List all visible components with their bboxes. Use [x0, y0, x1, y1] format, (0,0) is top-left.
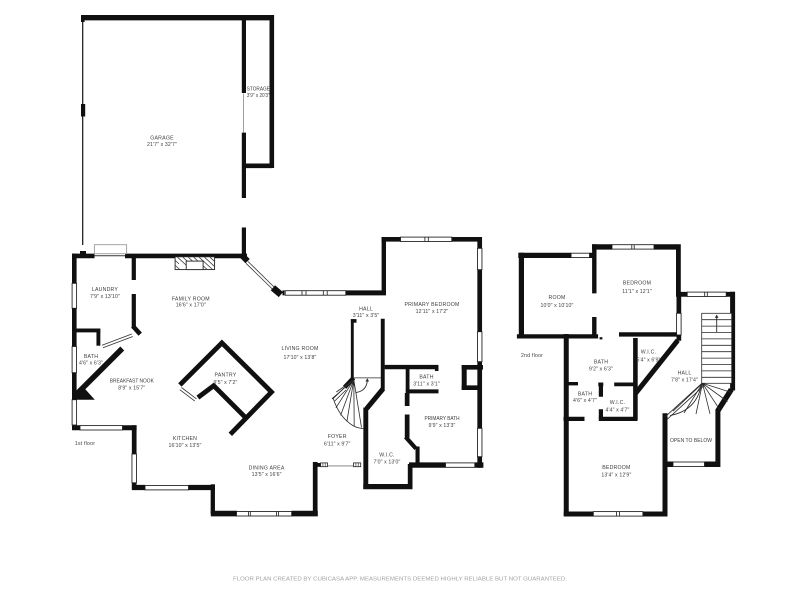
svg-text:9'9" x 13'3": 9'9" x 13'3"	[428, 423, 455, 429]
svg-text:KITCHEN: KITCHEN	[173, 436, 197, 442]
svg-text:1st floor: 1st floor	[75, 441, 96, 447]
svg-text:7'9" x 13'10": 7'9" x 13'10"	[90, 294, 120, 300]
svg-text:4'6" x 4'7": 4'6" x 4'7"	[573, 398, 597, 404]
svg-text:10'0" x 10'10": 10'0" x 10'10"	[540, 303, 573, 309]
svg-text:16'6" x 17'0": 16'6" x 17'0"	[176, 303, 206, 309]
svg-text:LAUNDRY: LAUNDRY	[92, 287, 119, 293]
svg-text:DINING AREA: DINING AREA	[249, 465, 285, 471]
svg-text:FLOOR PLAN CREATED BY CUBICASA: FLOOR PLAN CREATED BY CUBICASA APP. MEAS…	[233, 576, 568, 582]
svg-text:BATH: BATH	[84, 354, 98, 360]
svg-text:BATH: BATH	[578, 391, 592, 397]
svg-text:3'11" x 3'5": 3'11" x 3'5"	[353, 313, 380, 319]
svg-text:17'10" x 13'8": 17'10" x 13'8"	[283, 355, 316, 361]
svg-text:LIVING ROOM: LIVING ROOM	[281, 346, 318, 352]
svg-text:W.I.C.: W.I.C.	[641, 350, 656, 356]
svg-text:ROOM: ROOM	[548, 295, 565, 301]
svg-text:PANTRY: PANTRY	[215, 373, 237, 379]
svg-text:OPEN TO BELOW: OPEN TO BELOW	[670, 438, 712, 444]
svg-text:9'2" x 6'3": 9'2" x 6'3"	[589, 366, 613, 372]
svg-text:6'11" x 9'7": 6'11" x 9'7"	[324, 442, 351, 448]
svg-text:W.I.C.: W.I.C.	[379, 453, 394, 459]
svg-text:BEDROOM: BEDROOM	[602, 465, 630, 471]
svg-text:13'4" x 12'9": 13'4" x 12'9"	[601, 472, 631, 478]
svg-text:BREAKFAST NOOK: BREAKFAST NOOK	[110, 378, 154, 384]
svg-text:BATH: BATH	[419, 374, 433, 380]
svg-text:12'11" x 17'2": 12'11" x 17'2"	[416, 309, 449, 315]
svg-text:7'8" x 17'4": 7'8" x 17'4"	[671, 378, 698, 384]
svg-text:8'9" x 15'7": 8'9" x 15'7"	[118, 385, 145, 391]
svg-text:21'7" x 32'7": 21'7" x 32'7"	[147, 142, 177, 148]
svg-text:PRIMARY BEDROOM: PRIMARY BEDROOM	[405, 302, 460, 308]
svg-text:3'11" x 3'1": 3'11" x 3'1"	[413, 381, 440, 387]
svg-text:11'1" x 12'1": 11'1" x 12'1"	[622, 289, 652, 295]
svg-text:W.I.C.: W.I.C.	[610, 400, 625, 406]
svg-text:BEDROOM: BEDROOM	[623, 281, 651, 287]
svg-text:13'5" x 16'6": 13'5" x 16'6"	[252, 472, 282, 478]
svg-text:HALL: HALL	[359, 307, 373, 313]
svg-text:GARAGE: GARAGE	[150, 135, 174, 141]
svg-text:16'10" x 13'5": 16'10" x 13'5"	[168, 443, 201, 449]
svg-text:4'4" x 4'7": 4'4" x 4'7"	[605, 407, 629, 413]
svg-text:FOYER: FOYER	[328, 434, 347, 440]
svg-text:2nd floor: 2nd floor	[521, 353, 543, 359]
svg-text:4'6" x 6'3": 4'6" x 6'3"	[79, 360, 103, 366]
svg-text:3'9" x 20'3": 3'9" x 20'3"	[247, 93, 270, 99]
svg-text:BATH: BATH	[594, 359, 608, 365]
svg-text:7'0" x 13'0": 7'0" x 13'0"	[373, 460, 400, 466]
svg-text:FAMILY ROOM: FAMILY ROOM	[172, 297, 210, 303]
svg-text:PRIMARY BATH: PRIMARY BATH	[425, 416, 460, 422]
svg-text:STORAGE: STORAGE	[247, 87, 270, 93]
svg-text:HALL: HALL	[678, 371, 692, 377]
svg-text:9'5" x 7'2": 9'5" x 7'2"	[213, 380, 237, 386]
svg-text:5'4" x 6'9": 5'4" x 6'9"	[636, 358, 660, 364]
